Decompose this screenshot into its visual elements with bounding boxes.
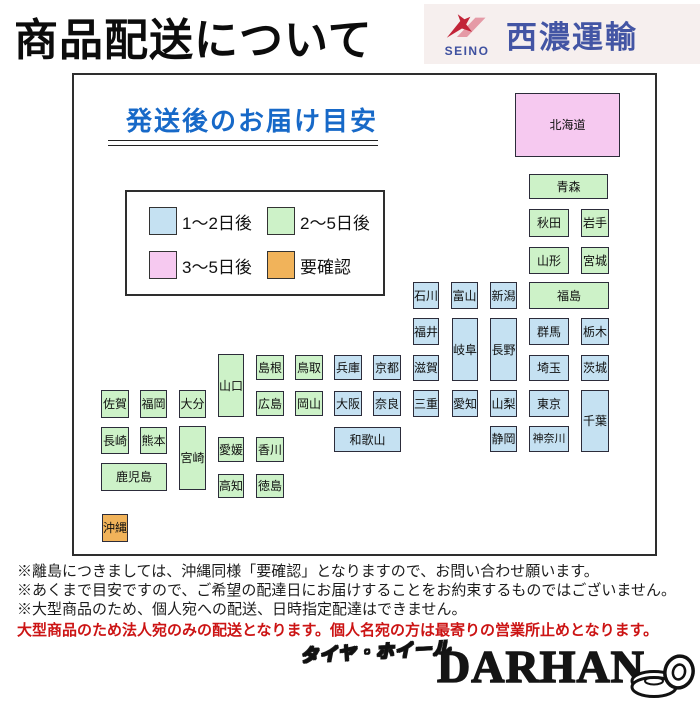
prefecture-京都: 京都: [373, 355, 401, 380]
prefecture-宮城: 宮城: [581, 247, 609, 274]
prefecture-静岡: 静岡: [490, 426, 517, 452]
shipping-notes: ※離島につきましては、沖縄同様「要確認」となりますので、お問い合わせ願います。※…: [17, 562, 697, 640]
panel-heading: 発送後のお届け目安: [126, 101, 378, 138]
prefecture-奈良: 奈良: [373, 391, 401, 416]
prefecture-神奈川: 神奈川: [529, 426, 569, 452]
prefecture-鳥取: 鳥取: [295, 355, 323, 380]
legend-box: 1〜2日後2〜5日後3〜5日後要確認: [125, 190, 385, 296]
prefecture-広島: 広島: [256, 391, 284, 416]
prefecture-香川: 香川: [256, 437, 284, 462]
footer-shop-name: DARHAN: [437, 644, 645, 690]
prefecture-熊本: 熊本: [140, 427, 167, 454]
legend-swatch-green: [267, 207, 295, 235]
seino-latin-text: SEINO: [438, 44, 496, 58]
note-emphasis: 大型商品のため法人宛のみの配送となります。個人名宛の方は最寄りの営業所止めとなり…: [17, 621, 697, 640]
legend-label: 2〜5日後: [300, 209, 370, 234]
prefecture-山梨: 山梨: [490, 390, 517, 417]
prefecture-沖縄: 沖縄: [102, 514, 128, 542]
prefecture-埼玉: 埼玉: [529, 355, 569, 381]
prefecture-宮崎: 宮崎: [179, 426, 206, 490]
legend-swatch-pink: [149, 251, 177, 279]
prefecture-高知: 高知: [218, 474, 244, 498]
heading-underline: [108, 140, 378, 146]
prefecture-北海道: 北海道: [515, 93, 620, 157]
prefecture-青森: 青森: [529, 174, 608, 199]
prefecture-栃木: 栃木: [581, 318, 609, 345]
prefecture-大阪: 大阪: [334, 391, 362, 416]
tires-icon: [630, 648, 696, 703]
seino-logo: SEINO 西濃運輸: [424, 4, 700, 64]
delivery-estimate-panel: 発送後のお届け目安 1〜2日後2〜5日後3〜5日後要確認 北海道青森秋田岩手山形…: [72, 73, 657, 556]
prefecture-愛知: 愛知: [452, 390, 478, 417]
prefecture-山形: 山形: [529, 247, 569, 274]
prefecture-秋田: 秋田: [529, 209, 569, 237]
prefecture-富山: 富山: [451, 282, 478, 309]
prefecture-茨城: 茨城: [581, 355, 609, 381]
prefecture-岡山: 岡山: [295, 391, 323, 416]
legend-item-pink: 3〜5日後: [149, 251, 267, 279]
prefecture-鹿児島: 鹿児島: [101, 463, 167, 491]
legend-label: 要確認: [300, 253, 351, 278]
note-line: ※離島につきましては、沖縄同様「要確認」となりますので、お問い合わせ願います。: [17, 562, 697, 581]
prefecture-岩手: 岩手: [581, 209, 609, 237]
prefecture-島根: 島根: [256, 355, 284, 380]
prefecture-千葉: 千葉: [581, 390, 609, 452]
prefecture-東京: 東京: [529, 390, 569, 417]
prefecture-石川: 石川: [413, 282, 439, 309]
prefecture-大分: 大分: [179, 390, 206, 418]
prefecture-和歌山: 和歌山: [334, 427, 401, 452]
prefecture-長崎: 長崎: [101, 427, 129, 454]
legend-label: 3〜5日後: [182, 253, 252, 278]
prefecture-三重: 三重: [413, 390, 439, 417]
prefecture-岐阜: 岐阜: [452, 318, 478, 381]
prefecture-山口: 山口: [218, 354, 244, 417]
legend-item-green: 2〜5日後: [267, 207, 383, 235]
prefecture-愛媛: 愛媛: [218, 437, 244, 462]
prefecture-徳島: 徳島: [256, 474, 284, 498]
note-line: ※あくまで目安ですので、ご希望の配達日にお届けすることをお約束するものではござい…: [17, 581, 697, 600]
prefecture-兵庫: 兵庫: [334, 355, 362, 380]
legend-item-orange: 要確認: [267, 251, 383, 279]
legend-label: 1〜2日後: [182, 209, 252, 234]
note-line: ※大型商品のため、個人宛への配送、日時指定配達はできません。: [17, 600, 697, 619]
prefecture-長野: 長野: [490, 318, 517, 381]
legend-swatch-blue: [149, 207, 177, 235]
page-title: 商品配送について: [14, 4, 373, 68]
legend-swatch-orange: [267, 251, 295, 279]
seino-company-name: 西濃運輸: [506, 12, 638, 57]
prefecture-福岡: 福岡: [140, 390, 167, 418]
seino-logo-mark-wrap: SEINO: [438, 10, 496, 58]
prefecture-福島: 福島: [529, 282, 609, 309]
prefecture-新潟: 新潟: [490, 282, 517, 309]
prefecture-佐賀: 佐賀: [101, 390, 129, 418]
legend-item-blue: 1〜2日後: [149, 207, 267, 235]
prefecture-群馬: 群馬: [529, 318, 569, 345]
prefecture-滋賀: 滋賀: [413, 355, 439, 381]
prefecture-福井: 福井: [413, 318, 439, 345]
